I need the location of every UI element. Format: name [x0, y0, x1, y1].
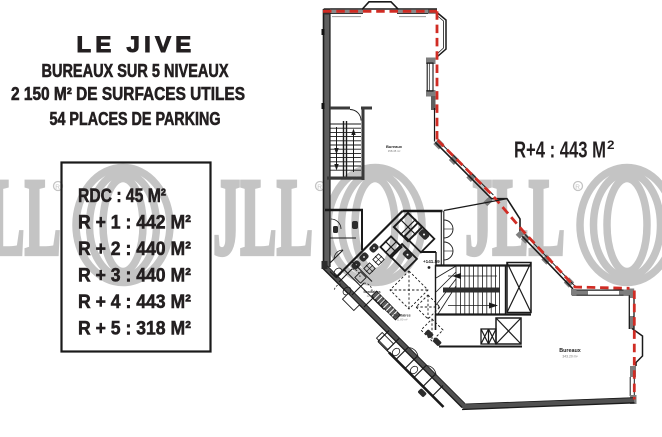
svg-text:11.80 m²: 11.80 m²	[397, 318, 408, 322]
svg-text:R: R	[55, 184, 60, 191]
svg-text:R: R	[317, 184, 322, 191]
svg-text:343.20 m²: 343.20 m²	[562, 355, 578, 359]
svg-text:JLL: JLL	[213, 156, 313, 278]
svg-text:R + 3 : 440 M²: R + 3 : 440 M²	[78, 266, 191, 287]
svg-text:2: 2	[607, 138, 615, 152]
svg-text:R: R	[575, 184, 580, 191]
svg-text:R + 1 : 442 M²: R + 1 : 442 M²	[78, 213, 191, 234]
svg-text:158.45 m²: 158.45 m²	[388, 149, 401, 153]
svg-text:JLL: JLL	[0, 156, 61, 278]
svg-text:54 PLACES DE PARKING: 54 PLACES DE PARKING	[50, 109, 221, 129]
svg-text:+141.59: +141.59	[423, 259, 440, 264]
svg-text:RDC : 45 M²: RDC : 45 M²	[78, 186, 166, 207]
svg-text:R + 4 : 443 M²: R + 4 : 443 M²	[78, 292, 191, 313]
svg-text:R+4 : 443 M: R+4 : 443 M	[514, 137, 606, 163]
svg-text:2 150 M² DE SURFACES UTILES: 2 150 M² DE SURFACES UTILES	[11, 84, 245, 104]
svg-text:LE JIVE: LE JIVE	[77, 32, 196, 57]
svg-text:R + 2 : 440 M²: R + 2 : 440 M²	[78, 239, 191, 260]
svg-text:R + 5 : 318 M²: R + 5 : 318 M²	[78, 319, 191, 340]
svg-text:BUREAUX SUR 5 NIVEAUX: BUREAUX SUR 5 NIVEAUX	[42, 61, 229, 81]
svg-text:Bureaux: Bureaux	[559, 348, 581, 354]
